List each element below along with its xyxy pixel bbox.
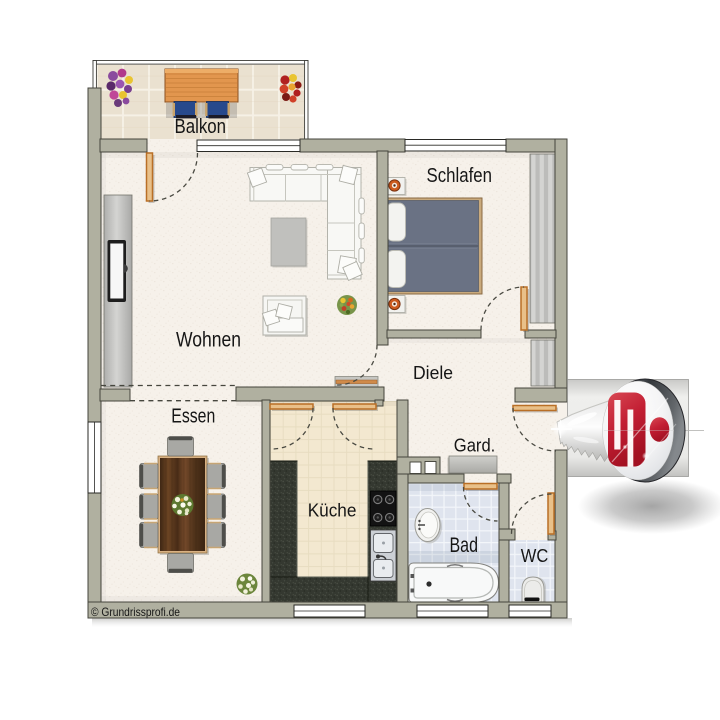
svg-text:Gard.: Gard. xyxy=(454,435,496,456)
svg-text:Küche: Küche xyxy=(308,499,357,520)
svg-text:Diele: Diele xyxy=(413,362,453,383)
svg-text:Wohnen: Wohnen xyxy=(176,329,241,352)
svg-text:Bad: Bad xyxy=(450,534,479,557)
svg-text:Balkon: Balkon xyxy=(175,116,227,138)
svg-text:WC: WC xyxy=(521,545,549,566)
svg-text:Schlafen: Schlafen xyxy=(427,164,493,187)
svg-text:© Grundrissprofi.de: © Grundrissprofi.de xyxy=(91,605,180,619)
svg-text:Essen: Essen xyxy=(171,406,215,428)
